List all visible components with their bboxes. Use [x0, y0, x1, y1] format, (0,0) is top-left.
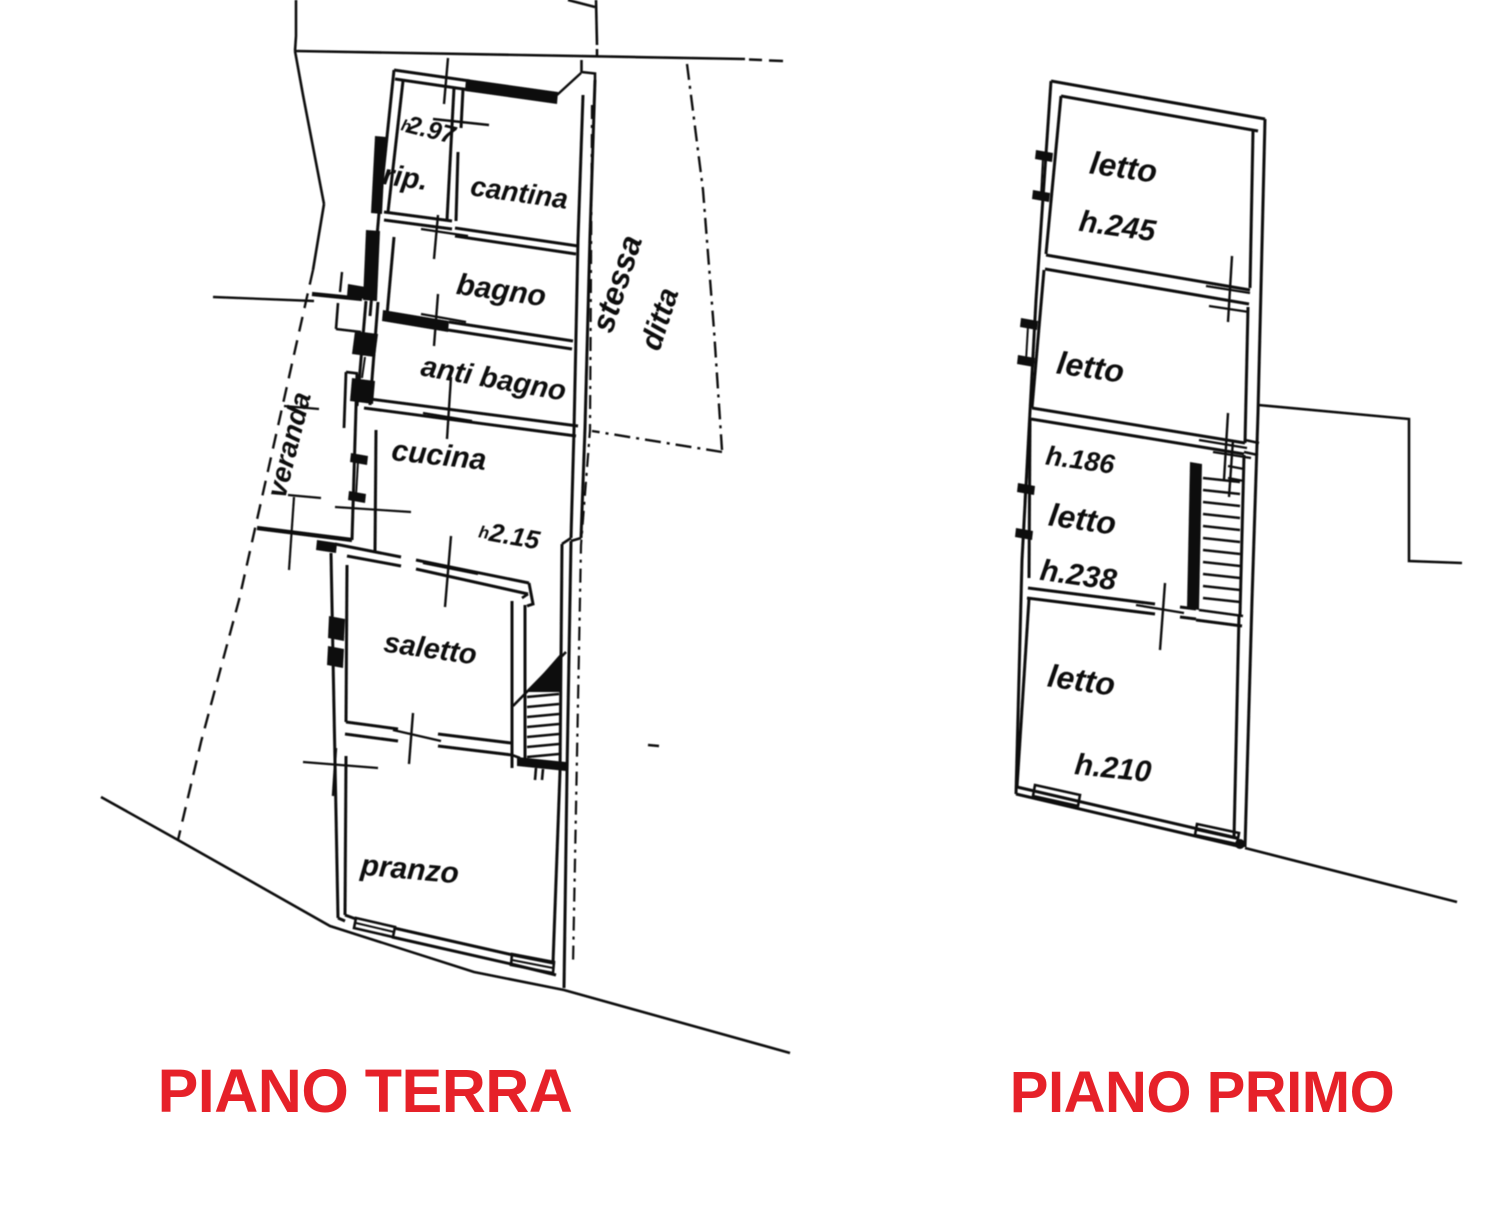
svg-text:rip.: rip. — [381, 159, 430, 197]
svg-text:PIANO TERRA: PIANO TERRA — [158, 1057, 573, 1125]
svg-text:PIANO PRIMO: PIANO PRIMO — [1010, 1060, 1394, 1125]
